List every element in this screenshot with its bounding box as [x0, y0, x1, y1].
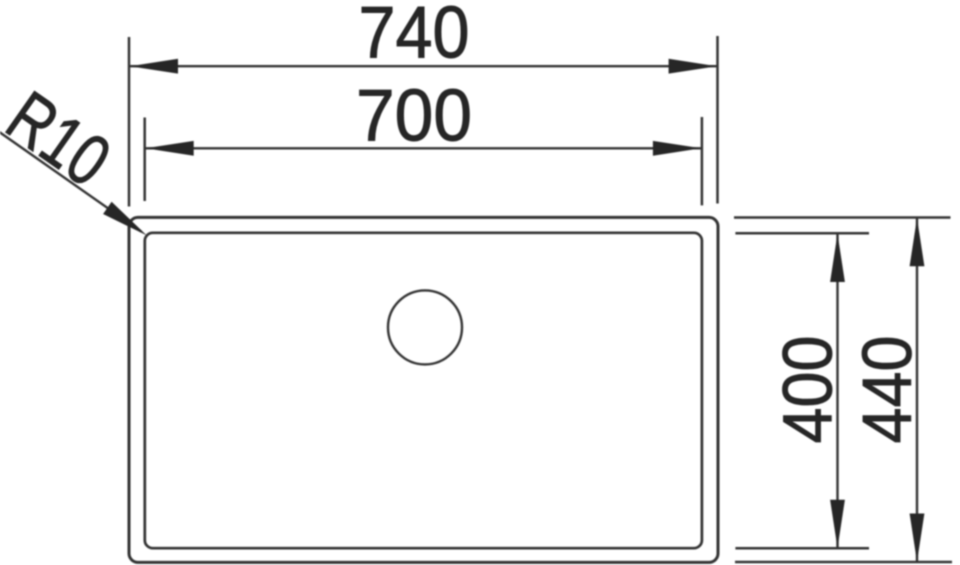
svg-text:400: 400 [769, 336, 847, 444]
svg-text:740: 740 [359, 0, 470, 74]
svg-text:R10: R10 [0, 76, 124, 202]
svg-text:440: 440 [848, 336, 926, 444]
svg-text:700: 700 [356, 76, 472, 157]
